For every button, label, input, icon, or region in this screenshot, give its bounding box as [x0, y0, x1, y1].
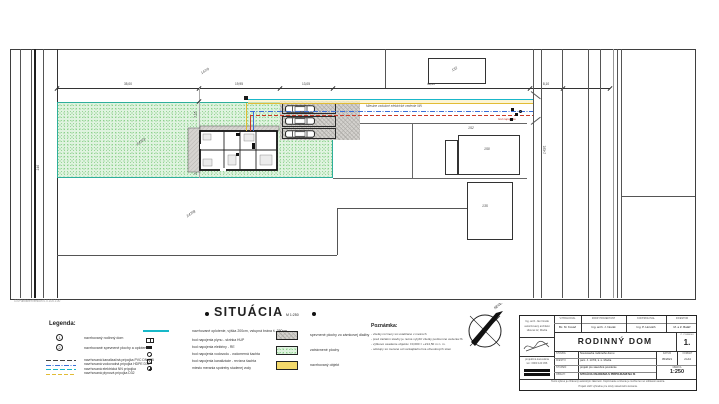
tb-row-label: OBSAH:: [556, 374, 565, 377]
building-east-annex: [445, 140, 458, 175]
gas-meter-icon: [146, 338, 154, 343]
signature-scribble: [522, 339, 552, 354]
parcel-line: [360, 123, 527, 124]
building-south-east-label: 135: [482, 205, 488, 209]
legend-symbol-label: miesto merania spotreby studenej vody: [192, 367, 251, 370]
tb-footer-line: Tento výkres je chránený autorským zákon…: [520, 381, 696, 384]
building-east: [458, 135, 520, 175]
tb-row-value: parc. č. 147/3, k. ú. Modra: [580, 360, 611, 363]
legend-area-label: zatrávnené plochy: [310, 349, 339, 353]
drawing-number-label: Č. VÝKRESU: [677, 334, 697, 336]
parcel-line-east: [621, 196, 695, 197]
legend-swatch-grass: [276, 346, 298, 355]
water-shaft-icon: [147, 352, 152, 357]
road-left-curb: [34, 49, 36, 298]
tb-col-value: Bc. M. Kováč: [554, 326, 581, 329]
legend-fence-sample: [143, 330, 169, 332]
legend-swatch-paving: [276, 331, 298, 340]
legend-area-label: navrhovaný objekt: [310, 364, 339, 368]
parcel-line-step-top: [337, 208, 467, 209]
dim-label: 19,95: [231, 83, 247, 86]
legend-symbol-label: bod napojenia kanalizácie - revízna šach…: [192, 360, 256, 363]
legend-area-label: spevnené plochy zo zámkovej dlažby: [310, 334, 369, 338]
road-left-line2: [43, 49, 44, 298]
legend-heading: Legenda:: [49, 321, 76, 327]
legend-number-2-icon: 2: [56, 344, 63, 351]
connection-box: [515, 113, 518, 116]
road-right-line6: [621, 49, 622, 298]
road-right-line2: [588, 49, 589, 298]
legend-symbol-label: bod napojenia vodovodu - vodomerná šacht…: [192, 353, 260, 356]
legend-line-sample-water: [46, 365, 76, 366]
sewer-line: [250, 111, 533, 112]
road-right-line5: [617, 49, 618, 298]
legend-line-label: navrhovaná vodovodná prípojka HDPE D32: [84, 363, 150, 366]
dim-label-vert: 7,15: [194, 107, 197, 123]
road-centerline: [573, 49, 574, 298]
legend-number-2-label: navrhované spevnené plochy a oplotenie: [84, 347, 149, 351]
tb-col-label: INVESTOR: [666, 318, 698, 320]
legend-symbol-label: bod napojenia elektriny - RE: [192, 346, 235, 349]
office-logo-bar: [524, 373, 550, 376]
road-right-line4: [613, 49, 614, 298]
parcel-label-road-right: 143/1: [544, 145, 548, 154]
title-block: Ing. arch. Ján Novák autorizovaný archit…: [519, 315, 697, 391]
gas-service-drop: [246, 103, 247, 131]
tb-col-value: M. a Z. Baláž: [666, 326, 698, 329]
legend-swatch-building: [276, 361, 298, 370]
utility-line-label: Miestne vzdušné elektrické vedenie NN: [366, 105, 422, 108]
car-icon: [285, 130, 315, 138]
page-title: SITUÁCIA: [214, 305, 283, 319]
building-east-label-a: 152: [468, 127, 474, 131]
building-south-east: [467, 182, 513, 240]
office-line2: projekčná kancelária: [520, 358, 554, 361]
road-left-line: [31, 49, 32, 298]
tb-row-value: SITUÁCIA OSADENIA S PRÍPOJKAMI NA IS: [580, 374, 635, 377]
building-east-label-b: 150: [484, 148, 490, 152]
dim-label: 13,05: [298, 83, 314, 86]
legend-line-sample-gas: [46, 374, 76, 375]
parcel-line: [412, 123, 413, 178]
tb-row-label: STUPEŇ:: [556, 367, 567, 370]
tb-col-value: Ing. P. Horváth: [626, 326, 666, 329]
connection-box: [510, 118, 513, 121]
office-line2: tel.: 0900 123 456: [520, 362, 554, 365]
legend-number-1-icon: 1: [56, 334, 63, 341]
office-line: Hlavná 12, Modra: [520, 329, 554, 332]
road-right-edge: [562, 49, 563, 298]
parcel-line: [333, 178, 527, 179]
drawing-number: 1.: [677, 339, 697, 347]
parcel-line-south: [57, 255, 337, 256]
format-label: FORMÁT: [678, 353, 697, 355]
tb-row-label: MIESTO:: [556, 360, 566, 363]
house-floor-plan: [186, 124, 280, 174]
tb-col-value: Ing. arch. J. Novák: [581, 326, 626, 329]
electric-service-drop: [250, 115, 251, 131]
tb-row-value: projekt pre stavebné povolenie: [580, 367, 617, 370]
note-line: - všetky rozmery sú uvádzané v metroch: [371, 333, 427, 336]
date-label: DÁTUM: [657, 353, 677, 355]
tb-col-label: VYPRACOVAL: [554, 318, 581, 320]
sewer-service-drop: [253, 111, 254, 131]
date-value: 05/2021: [657, 358, 677, 361]
project-title: RODINNÝ DOM: [554, 337, 676, 346]
building-north: [428, 58, 486, 84]
note-line: - odstupy sú merané od vonkajšieho líca …: [371, 348, 451, 351]
electric-cabinet-icon: [146, 346, 152, 350]
road-right-curb-w: [533, 49, 534, 298]
notes-heading: Poznámka:: [371, 323, 397, 329]
legend-line-sample-sewer: [46, 360, 76, 361]
electric-line: [250, 115, 533, 116]
note-line: - pred začatím stavby je nutné vytýčiť v…: [371, 338, 463, 341]
north-arrow-icon: SEVER: [462, 303, 508, 353]
office-line: autorizovaný architekt: [520, 325, 554, 328]
tb-footer-line: Projekt slúži výhradne pre účely stavebn…: [520, 386, 696, 389]
dim-label: 35,00: [120, 83, 136, 86]
legend-symbol-label: bod napojenia plynu - skrinka HUP: [192, 339, 244, 342]
legend-fence-label: navrhované oplotenie, výška 200cm, vstup…: [192, 330, 287, 334]
page-title-scale: M 1:250: [286, 313, 299, 317]
parcel-label-road-left: 146: [37, 165, 41, 171]
connection-node: [519, 110, 522, 113]
office-line: Ing. arch. Ján Novák: [520, 320, 554, 323]
car-icon: [285, 117, 315, 125]
office-logo-bar: [524, 369, 550, 372]
terrace: [188, 128, 200, 172]
meter-box: [244, 96, 248, 100]
tb-row-label: STAVBA:: [556, 353, 566, 356]
title-bullet-right: [312, 312, 316, 316]
format-value: 2×A4: [678, 358, 697, 361]
north-label: SEVER: [493, 303, 505, 310]
legend-line-sample-electric: [46, 369, 76, 370]
parcel-line-step: [337, 208, 338, 255]
site-plan-sheet: 146 35,00 19,95 13,05 48,50 8,10 147/3 7…: [0, 0, 719, 404]
road-right-line: [541, 49, 542, 298]
archicad-watermark: GSPublisherVersion 0.0.100.100: [14, 300, 60, 303]
road-right-line3: [600, 49, 601, 298]
water-meter-icon: [147, 366, 152, 371]
road-left-edge: [20, 49, 21, 298]
note-line: - výškové osadenie objektu: ±0,000 = +21…: [371, 343, 445, 346]
parcel-line-north: [385, 49, 386, 88]
connection-box: [511, 108, 514, 111]
tb-col-label: KONTROLOVAL: [626, 318, 666, 320]
tb-row-value: Novostavba rodinného domu: [580, 353, 614, 356]
title-bullet-left: [205, 312, 209, 316]
sewer-shaft-icon: [147, 359, 152, 364]
tb-col-label: ZODP. PROJEKTANT: [581, 318, 626, 320]
legend-line-label: navrhovaná plynová prípojka D32: [84, 372, 135, 375]
scale-value: 1:250: [657, 370, 697, 376]
water-line: [248, 99, 533, 100]
legend-number-1-label: navrhovaný rodinný dom: [84, 337, 123, 341]
